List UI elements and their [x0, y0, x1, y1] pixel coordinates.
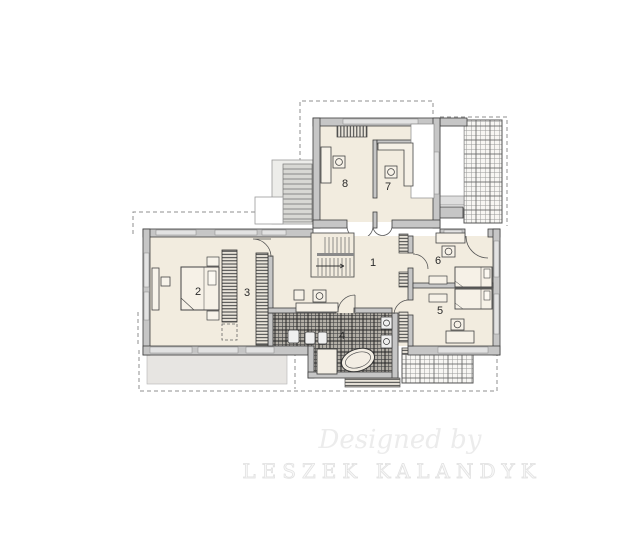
room-8-label: 8	[342, 178, 348, 190]
room-6-label: 6	[435, 255, 441, 267]
window	[144, 292, 149, 320]
chair	[451, 319, 464, 330]
stair-landing	[255, 197, 283, 224]
room-2-label: 2	[195, 286, 201, 298]
window	[494, 294, 499, 334]
bath-balcony	[345, 378, 400, 387]
side-table	[429, 276, 447, 284]
bathroom-tile-band	[268, 313, 392, 346]
window	[144, 253, 149, 287]
room-5-label: 5	[437, 305, 443, 317]
window	[262, 230, 286, 235]
window	[494, 241, 499, 277]
bed	[455, 289, 492, 309]
wardrobe-unit	[256, 253, 268, 345]
window	[156, 230, 196, 235]
watermark-line2: LESZEK KALANDYK	[242, 459, 541, 483]
room-4-label: 4	[339, 330, 345, 342]
radiator	[337, 126, 367, 137]
nightstand	[207, 257, 219, 266]
room-1-label: 1	[370, 257, 376, 269]
exterior-staircase	[255, 160, 313, 224]
balcony-strip	[440, 126, 464, 208]
bed	[455, 267, 492, 287]
window	[198, 347, 238, 353]
wardrobe-unit	[222, 250, 237, 322]
window	[150, 347, 192, 353]
window	[434, 152, 439, 194]
nightstand	[207, 311, 219, 320]
window	[246, 347, 274, 353]
floor-plan-drawing: 8 7	[0, 0, 638, 556]
watermark: Designed by LESZEK KALANDYK	[242, 425, 541, 483]
balcony-lower-left	[147, 355, 287, 384]
window	[343, 119, 418, 124]
terrace-grid	[464, 120, 502, 223]
floor-plan-page: 8 7	[0, 0, 638, 556]
upper-block: 8 7	[313, 118, 440, 239]
room-3-label: 3	[244, 287, 250, 299]
desk	[436, 233, 465, 243]
watermark-line1: Designed by	[318, 425, 482, 455]
terrace-top-right	[432, 118, 502, 223]
window	[215, 230, 257, 235]
void-shaft	[411, 124, 434, 198]
chair	[442, 246, 455, 257]
wc-fixtures	[288, 330, 327, 344]
shower	[317, 349, 337, 374]
desk	[446, 331, 474, 343]
window	[438, 347, 488, 353]
staircase	[311, 233, 354, 277]
room-7-label: 7	[385, 181, 391, 193]
tv-unit	[161, 277, 170, 286]
side-table	[429, 294, 447, 302]
dresser	[152, 268, 159, 310]
